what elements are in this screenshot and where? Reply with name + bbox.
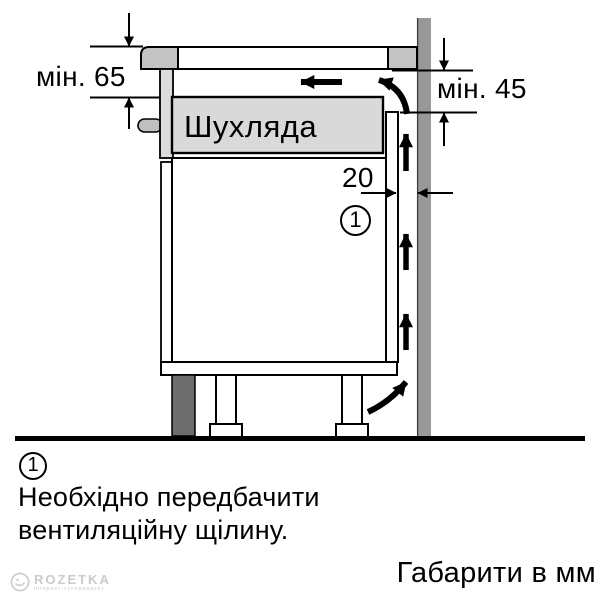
- wall: [417, 18, 431, 438]
- cabinet-leg-front: [216, 375, 236, 426]
- cabinet-leg-front-foot: [210, 424, 242, 437]
- footnote-line-2: вентиляційну щілину.: [18, 516, 289, 544]
- cabinet-leg-back-foot: [336, 424, 368, 437]
- callout-1-badge: 1: [340, 205, 371, 236]
- dim-label-gap-20: 20: [342, 163, 374, 192]
- cabinet-leg-back: [342, 375, 362, 426]
- dim-label-min-65: мін. 65: [36, 62, 126, 91]
- airflow-inlet-bottom-arrow-icon: [368, 382, 406, 412]
- watermark-brand: ROZETKA: [34, 573, 111, 586]
- plinth-panel: [172, 375, 195, 436]
- footnote-line-1: Необхідно передбачити: [18, 483, 320, 511]
- installation-diagram: мін. 65 мін. 45 20 Шухляда 1 1 Необхідно…: [0, 0, 600, 600]
- footnote-marker-badge: 1: [19, 452, 47, 480]
- cabinet-back-panel: [386, 112, 398, 362]
- mounting-bracket: [138, 119, 162, 132]
- hob-right-edge: [388, 47, 417, 69]
- watermark: ROZETKA інтернет-супермаркет: [10, 572, 111, 592]
- units-note: Габарити в мм: [397, 558, 596, 588]
- dim-label-min-45: мін. 45: [437, 74, 527, 103]
- cabinet-front-panel: [161, 162, 172, 362]
- rozetka-logo-icon: [10, 572, 30, 592]
- hob-left-edge: [141, 47, 178, 69]
- drawer-label: Шухляда: [184, 111, 317, 144]
- watermark-tagline: інтернет-супермаркет: [34, 587, 111, 592]
- worktop: [178, 47, 388, 69]
- cabinet-bottom-shelf: [161, 362, 397, 375]
